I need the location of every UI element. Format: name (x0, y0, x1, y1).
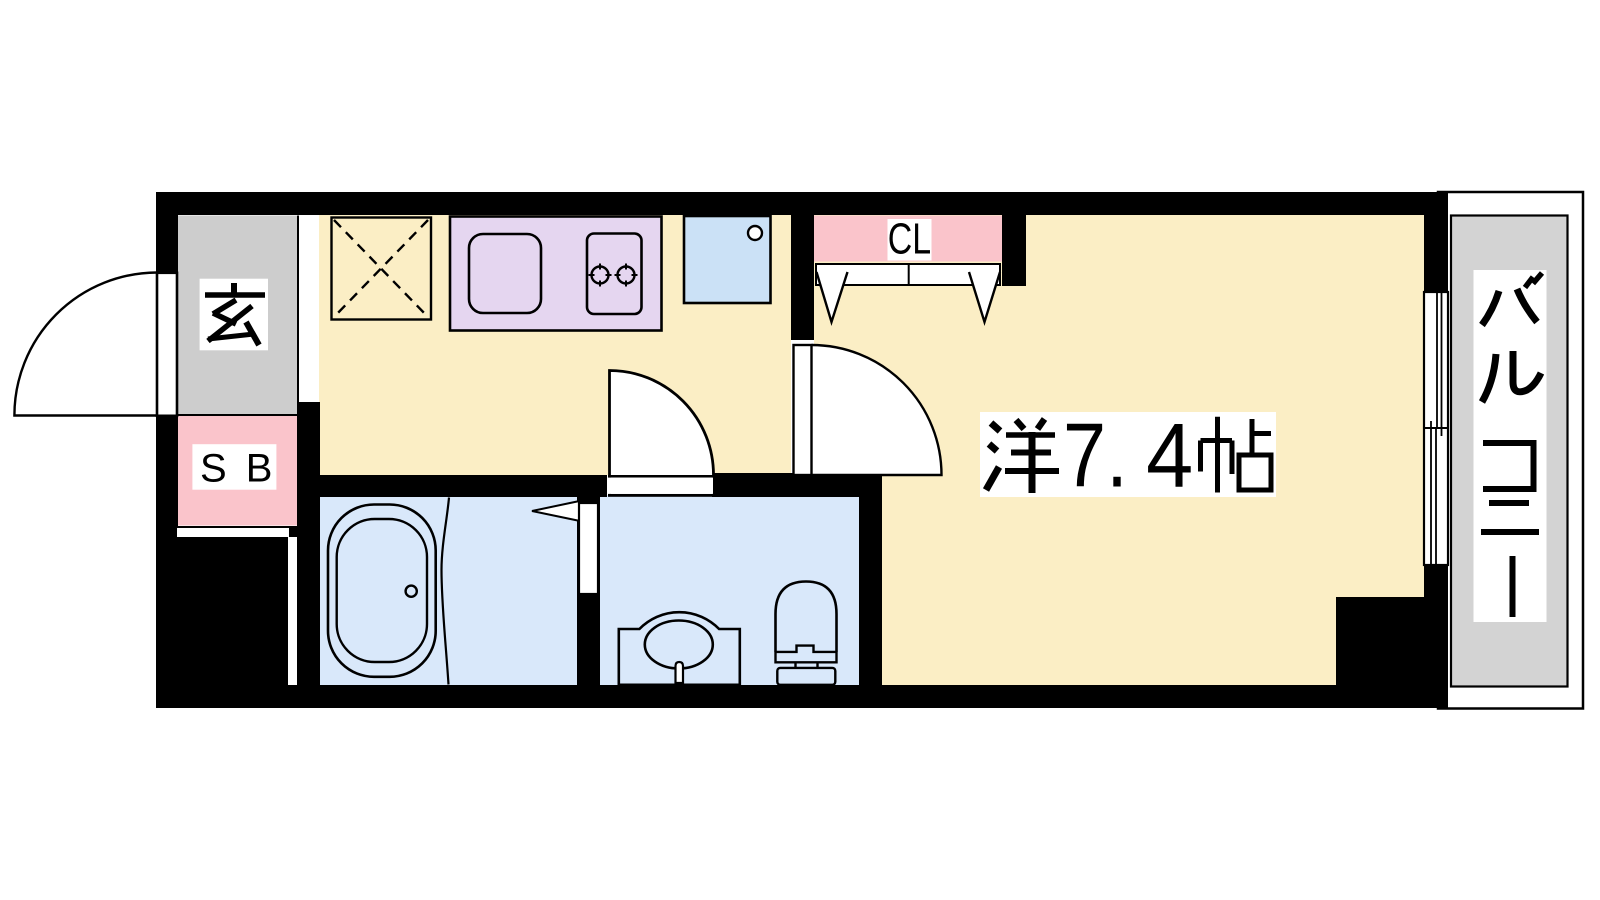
svg-text:S B: S B (200, 447, 276, 491)
svg-text:CL: CL (888, 216, 931, 264)
svg-text:7: 7 (1063, 404, 1106, 505)
svg-text:4: 4 (1146, 403, 1193, 506)
svg-text:.: . (1106, 404, 1127, 505)
